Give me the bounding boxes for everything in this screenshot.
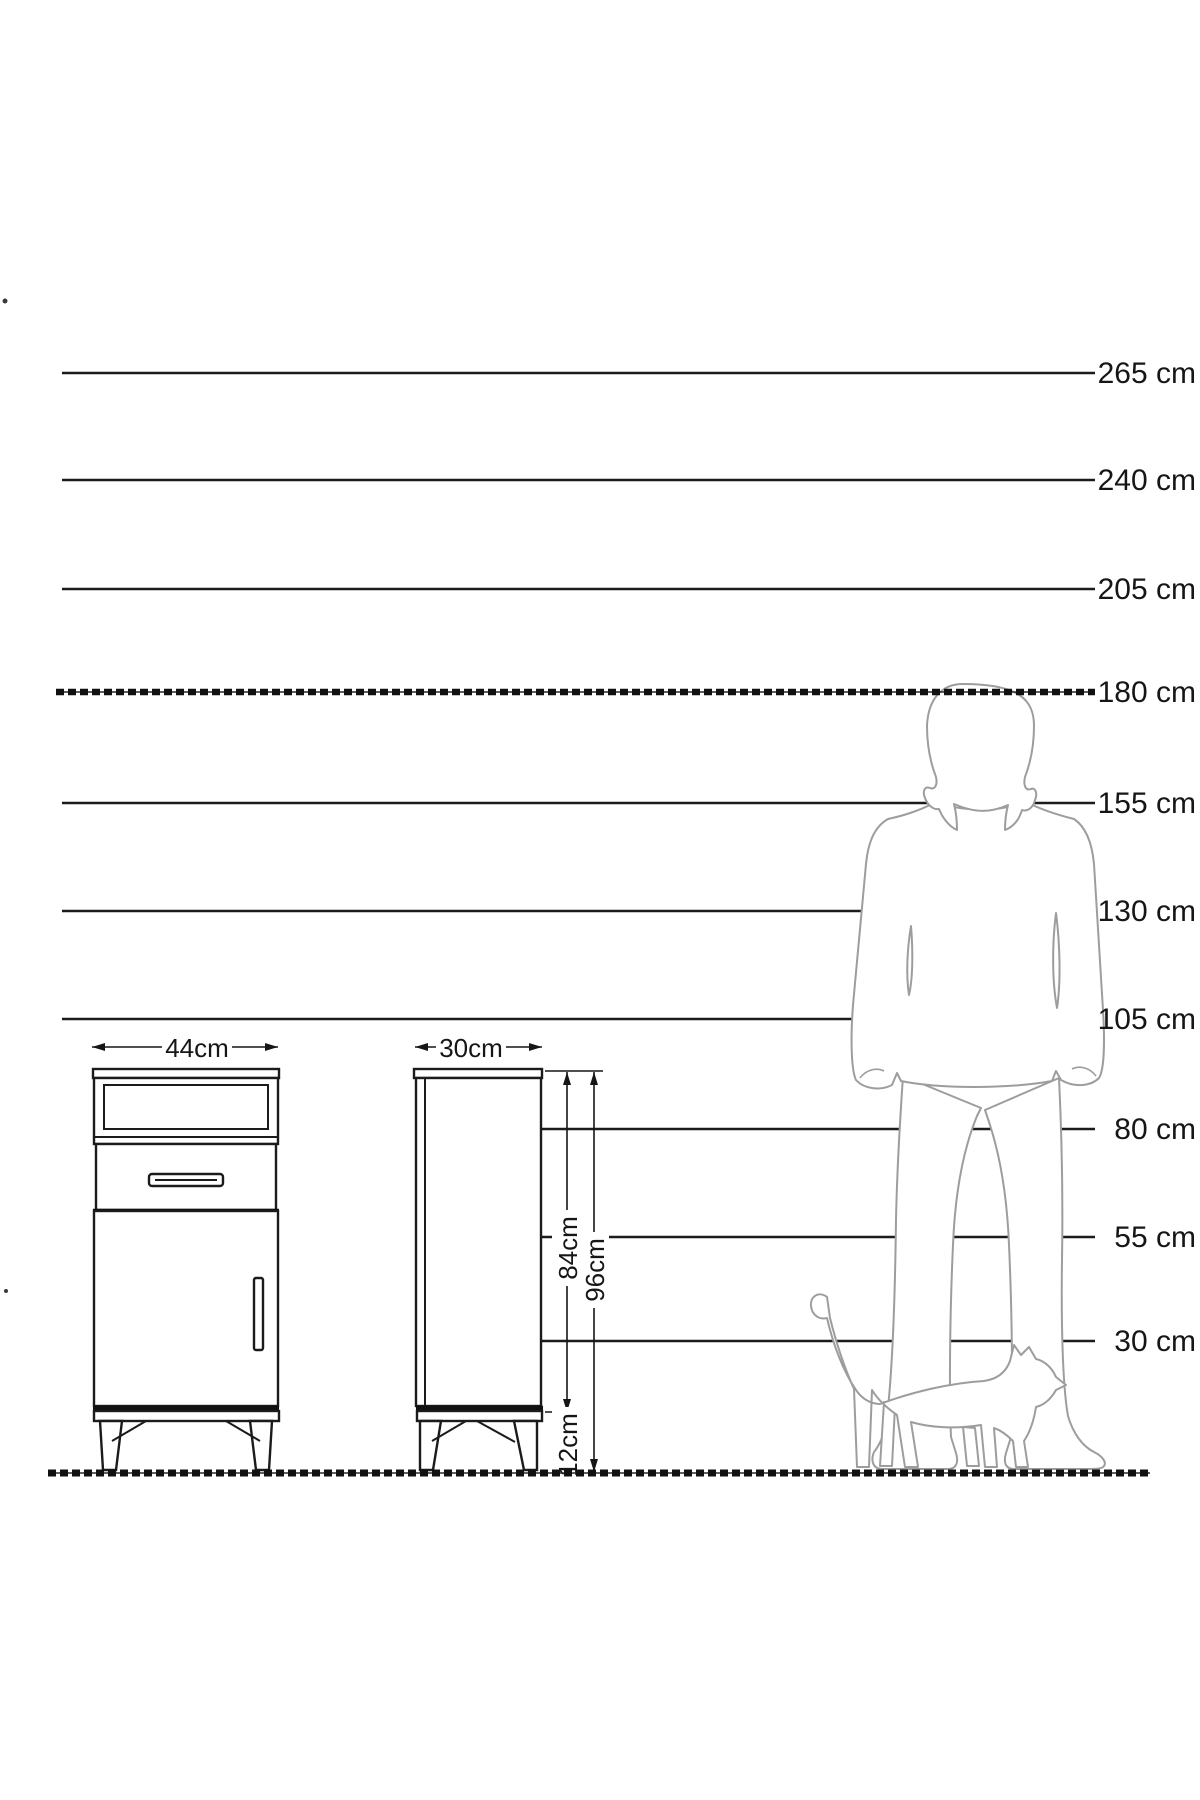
dimension-84cm: 84cm xyxy=(552,1072,583,1412)
side-body-panel xyxy=(416,1078,541,1406)
scan-artifact-dot xyxy=(4,1289,8,1293)
side-legs xyxy=(420,1421,537,1470)
man-head xyxy=(924,684,1036,830)
man-torso xyxy=(852,802,1104,1088)
front-width-dimension: 44cm xyxy=(92,1033,278,1063)
label-130cm: 130 cm xyxy=(1098,895,1196,928)
label-205cm: 205 cm xyxy=(1098,573,1196,606)
front-width-label: 44cm xyxy=(165,1033,229,1063)
arrow-right-icon xyxy=(529,1043,542,1051)
dimension-96cm: 96cm xyxy=(579,1072,610,1472)
label-265cm: 265 cm xyxy=(1098,357,1196,390)
total-height-label: 96cm xyxy=(580,1238,610,1302)
arrow-right-icon xyxy=(265,1043,278,1051)
door-handle xyxy=(254,1278,263,1350)
side-top-panel xyxy=(414,1069,542,1078)
cat-far-leg-front xyxy=(963,1427,979,1466)
scan-artifact-dot xyxy=(3,299,8,304)
arrow-left-icon xyxy=(415,1043,428,1051)
label-240cm: 240 cm xyxy=(1098,464,1196,497)
side-depth-dimension: 30cm xyxy=(415,1033,542,1063)
body-height-label: 84cm xyxy=(553,1216,583,1280)
front-legs xyxy=(100,1421,272,1470)
side-depth-label: 30cm xyxy=(439,1033,503,1063)
front-top-panel xyxy=(93,1069,279,1078)
label-155cm: 155 cm xyxy=(1098,787,1196,820)
diagram-svg: 44cm 30cm xyxy=(0,0,1200,1800)
label-30cm: 30 cm xyxy=(1114,1325,1196,1358)
front-door xyxy=(94,1211,278,1406)
front-open-shelf xyxy=(94,1078,278,1144)
height-dimensions: 84cm 96cm 12cm xyxy=(545,1071,610,1483)
label-105cm: 105 cm xyxy=(1098,1003,1196,1036)
furniture-scale-diagram: 44cm 30cm xyxy=(0,0,1200,1800)
man-right-arm-slit xyxy=(1053,913,1059,1008)
side-bottom-rail xyxy=(417,1411,542,1421)
cabinet-front-view: 44cm xyxy=(92,1033,279,1470)
height-scale-labels: 265 cm 240 cm 205 cm 180 cm 155 cm 130 c… xyxy=(1098,357,1196,1358)
leg-height-label: 12cm xyxy=(553,1413,583,1477)
label-180cm: 180 cm xyxy=(1098,676,1196,709)
label-80cm: 80 cm xyxy=(1114,1113,1196,1146)
label-55cm: 55 cm xyxy=(1114,1221,1196,1254)
cabinet-side-view: 30cm 84cm xyxy=(414,1033,610,1483)
arrow-left-icon xyxy=(92,1043,105,1051)
front-bottom-rail xyxy=(94,1411,279,1421)
